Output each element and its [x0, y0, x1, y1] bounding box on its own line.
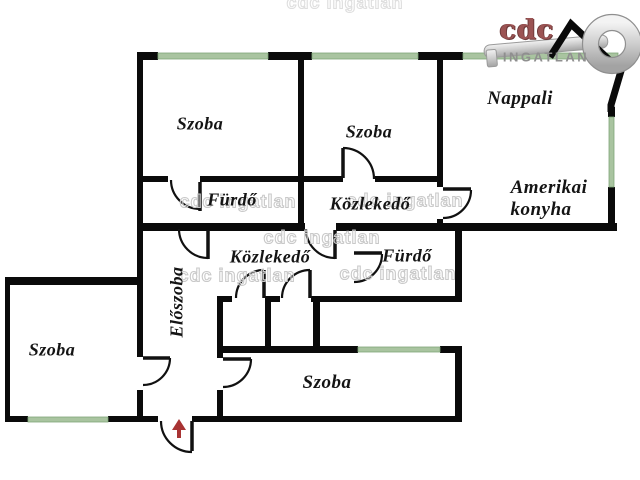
room-label-kozlekedo-upper: Közlekedő	[330, 194, 411, 215]
room-label-szoba-bottom-left: Szoba	[29, 340, 76, 361]
room-label-eloszoba: Előszoba	[167, 266, 188, 337]
window-icon	[158, 53, 268, 59]
room-label-amerikai: Amerikai	[511, 177, 588, 199]
watermark: cdc ingatlan	[286, 0, 403, 14]
watermark: cdc ingatlan	[263, 228, 380, 249]
watermark: cdc ingatlan	[178, 266, 295, 287]
window-icon	[609, 117, 614, 187]
logo-brand-text: cdc	[500, 15, 555, 46]
room-label-szoba-top-left: Szoba	[177, 114, 224, 135]
watermark: cdc ingatlan	[339, 264, 456, 285]
room-label-szoba-bottom-mid: Szoba	[303, 372, 352, 394]
room-label-szoba-top-mid: Szoba	[346, 122, 393, 143]
room-label-furdo-upper: Fürdő	[207, 190, 257, 211]
room-label-kozlekedo-lower: Közlekedő	[230, 247, 311, 268]
room-label-konyha: konyha	[510, 199, 571, 221]
entrance-arrow-icon	[172, 419, 186, 438]
window-icon	[312, 53, 418, 59]
logo-name-text: INGATLAN	[503, 50, 589, 65]
floor-plan-canvas: cdc ingatlan cdc ingatlan cdc ingatlan c…	[0, 0, 640, 480]
window-icon	[28, 417, 108, 422]
window-icon	[358, 347, 440, 352]
room-label-nappali: Nappali	[487, 88, 553, 110]
room-label-furdo-lower: Fürdő	[382, 246, 432, 267]
